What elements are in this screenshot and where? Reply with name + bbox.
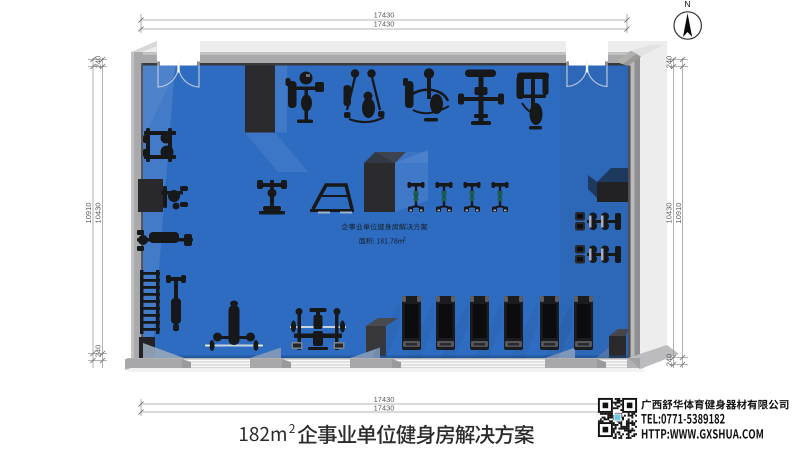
svg-text:17430: 17430 [374,11,395,20]
svg-text:240: 240 [94,56,103,69]
svg-text:240: 240 [665,354,674,367]
svg-text:17430: 17430 [374,404,395,413]
svg-text:17430: 17430 [374,20,395,29]
svg-text:10910: 10910 [84,203,93,224]
svg-text:10430: 10430 [665,203,674,224]
svg-text:240: 240 [665,56,674,69]
svg-text:2: 2 [403,237,406,243]
svg-text:10430: 10430 [94,203,103,224]
svg-text:10910: 10910 [674,203,683,224]
svg-text:N: N [684,0,690,9]
svg-text:240: 240 [94,345,103,358]
